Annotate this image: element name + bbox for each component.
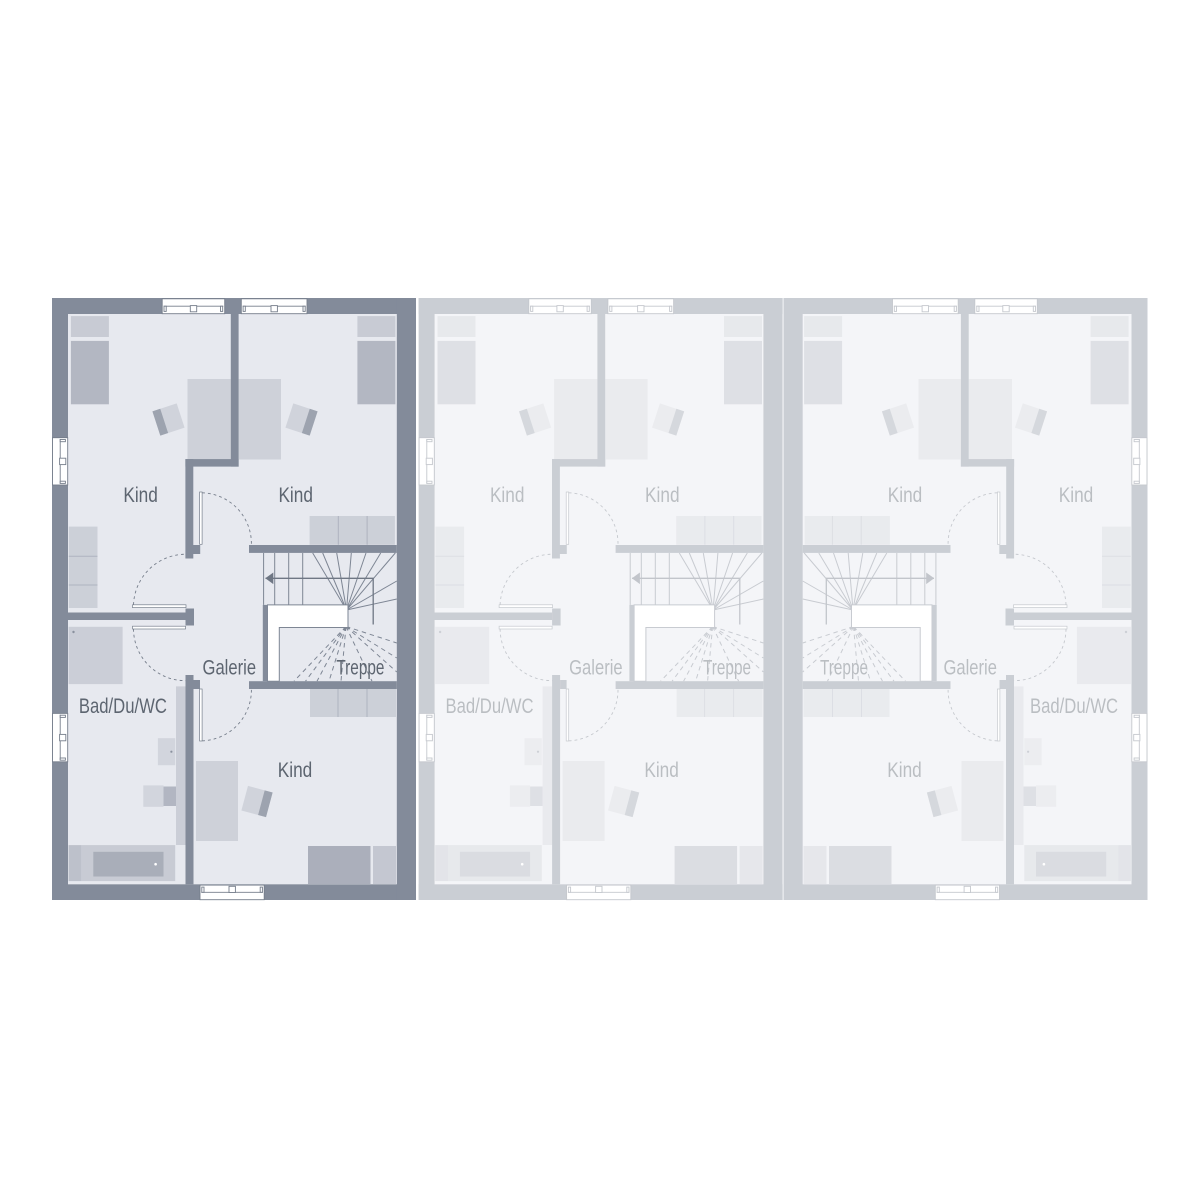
svg-text:Kind: Kind xyxy=(490,484,525,507)
svg-text:Kind: Kind xyxy=(278,759,313,782)
svg-text:Kind: Kind xyxy=(123,484,158,507)
svg-text:Kind: Kind xyxy=(644,759,679,782)
svg-text:Kind: Kind xyxy=(887,759,922,782)
svg-text:Galerie: Galerie xyxy=(569,657,623,680)
svg-text:Bad/Du/WC: Bad/Du/WC xyxy=(1030,695,1118,718)
svg-text:Kind: Kind xyxy=(888,484,923,507)
svg-text:Kind: Kind xyxy=(645,484,680,507)
svg-text:Treppe: Treppe xyxy=(336,657,384,680)
svg-text:Treppe: Treppe xyxy=(820,657,868,680)
svg-text:Bad/Du/WC: Bad/Du/WC xyxy=(446,695,534,718)
svg-text:Bad/Du/WC: Bad/Du/WC xyxy=(79,695,167,718)
svg-text:Treppe: Treppe xyxy=(703,657,751,680)
svg-text:Galerie: Galerie xyxy=(203,657,257,680)
svg-text:Kind: Kind xyxy=(278,484,313,507)
svg-text:Kind: Kind xyxy=(1059,484,1094,507)
svg-text:Galerie: Galerie xyxy=(943,657,997,680)
